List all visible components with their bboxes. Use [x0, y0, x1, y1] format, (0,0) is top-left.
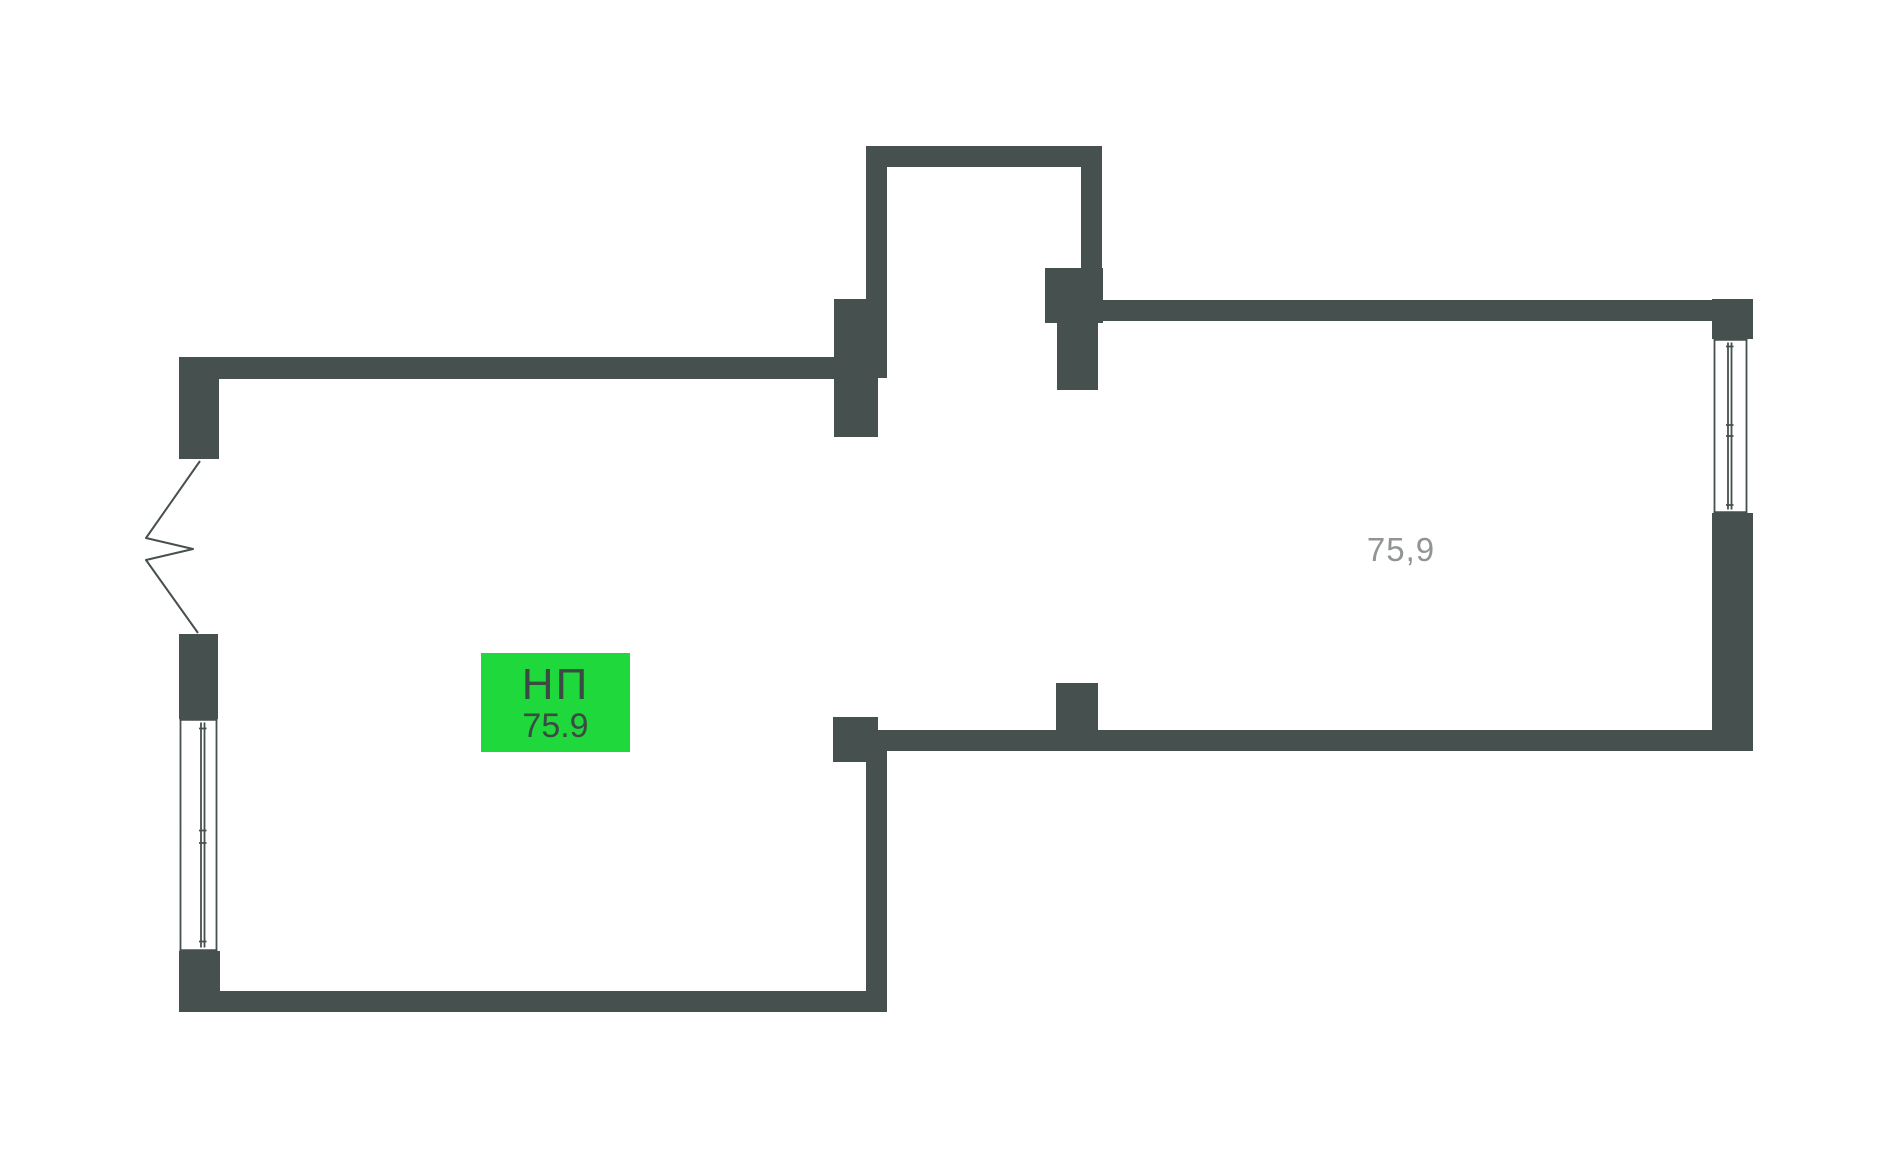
unit-area-label: 75.9: [522, 709, 588, 743]
wall-segment-divider-jamb: [833, 717, 878, 762]
unit-label-badge[interactable]: НП 75.9: [481, 653, 630, 752]
room-area-label: 75,9: [1341, 531, 1461, 569]
wall-segment-vestibule-right-pillar: [1057, 323, 1098, 390]
floor-plan: НП 75.9 75,9: [0, 0, 1900, 1159]
wall-segment-right-wall-bottom: [1712, 513, 1753, 751]
wall-segment-vestibule-left-pillar: [834, 378, 878, 437]
wall-segment-left-door-lower-block: [179, 634, 218, 719]
wall-segment-vestibule-left-jamb: [834, 299, 887, 378]
entrance-zigzag: [146, 461, 200, 633]
wall-segment-bottom-stub: [1056, 683, 1098, 731]
wall-segment-left-room-top: [179, 357, 834, 379]
right-window: [1714, 339, 1748, 513]
wall-segment-divider: [866, 751, 887, 1012]
wall-segment-right-room-bottom: [877, 730, 1753, 751]
windows: [180, 339, 1748, 951]
wall-segment-left-room-bottom: [179, 991, 887, 1012]
wall-segment-left-upper-block: [179, 357, 219, 459]
wall-segment-right-room-top: [1102, 300, 1753, 321]
wall-segment-vestibule-top: [866, 146, 1102, 167]
wall-segment-vestibule-right-jamb: [1045, 268, 1103, 323]
unit-type-label: НП: [522, 663, 589, 707]
walls: [179, 146, 1753, 1012]
floor-plan-drawing: [0, 0, 1900, 1159]
left-window: [180, 719, 218, 951]
